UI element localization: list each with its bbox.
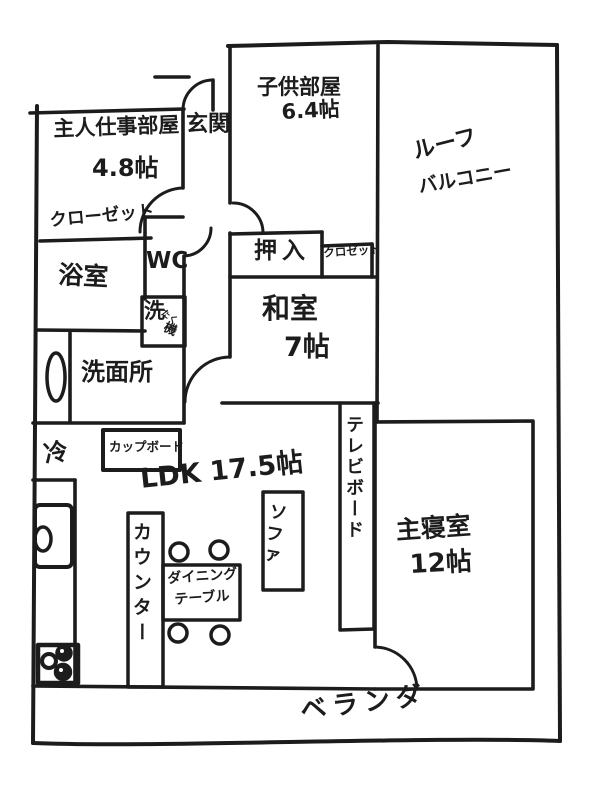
fixture-label-cupboard: カップボード bbox=[109, 441, 184, 454]
room-label-kids-room: 子供部屋 bbox=[257, 77, 341, 98]
burner-icon bbox=[56, 665, 71, 680]
fixture-label-dining-table-line2: テーブル bbox=[174, 589, 230, 607]
room-size-kids-room: 6.4帖 bbox=[281, 99, 340, 123]
fixture-label-refrigerator: 冷 bbox=[42, 439, 70, 467]
room-label-oshiire: 押入 bbox=[254, 240, 310, 263]
burner-icon bbox=[57, 646, 71, 660]
washbasin-icon bbox=[47, 353, 65, 401]
fixture-label-counter: カウンター bbox=[131, 522, 150, 647]
outer-walls bbox=[33, 42, 560, 744]
wall-ldk-bottom bbox=[33, 686, 375, 689]
burner-icon bbox=[42, 654, 56, 668]
room-label-washitsu: 和室 bbox=[262, 295, 318, 323]
room-label-toilet: WC bbox=[146, 250, 188, 273]
room-size-master-bedroom: 12帖 bbox=[409, 549, 472, 578]
wall-oshiire-top bbox=[230, 232, 322, 234]
wall-bottom bbox=[33, 740, 560, 744]
room-label-master-work-room: 主人仕事部屋 bbox=[53, 115, 180, 140]
door-arc-corridor-ldk bbox=[185, 357, 230, 402]
burner-highlight bbox=[60, 649, 64, 653]
wall-right bbox=[557, 45, 560, 741]
door-arc-kids-room bbox=[233, 203, 263, 233]
sink-box bbox=[35, 505, 72, 567]
wall-top bbox=[228, 42, 557, 46]
sink-drain-icon bbox=[35, 527, 51, 551]
closet-main-line bbox=[40, 238, 151, 241]
room-label-master-bedroom: 主寝室 bbox=[395, 513, 472, 543]
chair-icon bbox=[169, 624, 187, 642]
chair-icon bbox=[210, 541, 228, 559]
wall-balcony-left bbox=[377, 45, 378, 422]
room-label-washroom: 洗面所 bbox=[81, 360, 153, 384]
room-size-washitsu: 7帖 bbox=[284, 334, 330, 361]
room-label-bathroom: 浴室 bbox=[58, 262, 109, 290]
room-label-entrance: 玄関 bbox=[186, 114, 230, 136]
wall-bath-bottom bbox=[37, 330, 145, 331]
burner-highlight bbox=[59, 668, 63, 672]
floorplan-page: 主人仕事部屋 4.8帖 玄関 子供部屋 6.4帖 ルーフ バルコニー クローゼッ… bbox=[0, 0, 600, 789]
chair-icon bbox=[170, 543, 188, 561]
chair-icon bbox=[211, 626, 229, 644]
fixture-label-tv-board: テレビボード bbox=[344, 415, 362, 541]
room-size-master-work-room: 4.8帖 bbox=[92, 156, 159, 180]
door-arc-entrance bbox=[183, 80, 213, 110]
